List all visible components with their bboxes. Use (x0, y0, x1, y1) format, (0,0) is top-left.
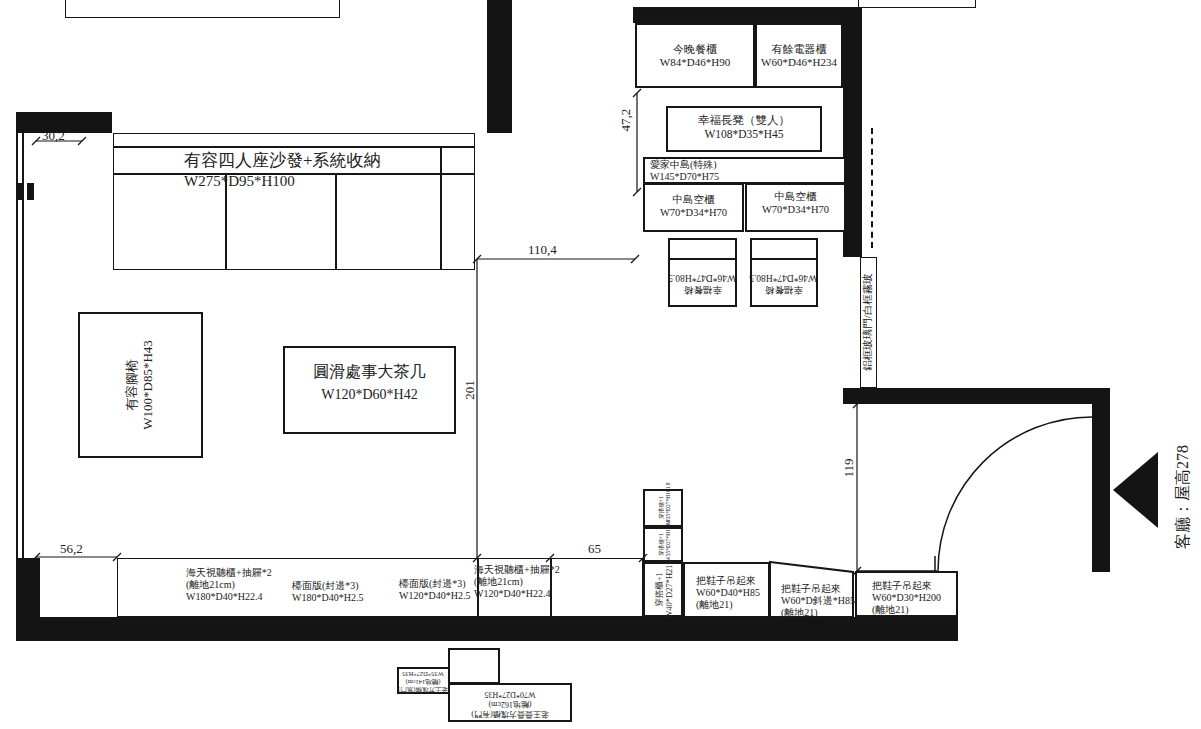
appliance-cabinet-name: 有餘電器櫃 (755, 43, 843, 56)
counter-180-label: 檯面版(封邊*3) W180*D40*H2.5 (292, 580, 363, 604)
cube-cabinet-small-label: 老王方塊櫃(無門) (離地141cm) W35*D27*H35 (393, 670, 453, 694)
island-cabinet-left-name: 中島空櫃 (643, 194, 744, 207)
window-hatch-2 (27, 183, 34, 200)
adjacent-room-top-right (858, 0, 976, 8)
shoe-cabinet-c-name: 把鞋子吊起來 (872, 580, 941, 592)
cube-cabinet-large-name: 老王疊疊方塊櫃(有門) (465, 709, 555, 719)
glass-door-label: 鋁框玻璃門/白框霧玻 (862, 262, 876, 382)
appliance-cabinet-dim: W60*D46*H234 (755, 56, 843, 69)
dim-119-label: 119 (841, 451, 855, 485)
room-title: 客廳：屋高278 (1173, 434, 1193, 560)
island-dim: W145*D70*H75 (650, 171, 719, 183)
wardrobe-tall-label: 穿搭櫃+1 W40*D27*H219 (654, 555, 675, 625)
shoe-cabinet-b-label: 把鞋子吊起來 W60*D斜邊*H85 (離地21) (781, 583, 855, 620)
coffee-table-name: 圓滑處事大茶几 (283, 362, 456, 382)
dim-201-label: 201 (462, 373, 476, 407)
av-cabinet-120-label: 海天視聽櫃+抽屜*2 (離地21cm) W120*D40*H22.4 (474, 564, 560, 601)
adjacent-room-top-left (65, 0, 340, 18)
footstool-label: 有容腳椅 W100*D85*H43 (124, 315, 158, 455)
appliance-cabinet-label: 有餘電器櫃 W60*D46*H234 (755, 43, 843, 70)
av-cabinet-180-note: (離地21cm) (186, 579, 272, 591)
island-cabinet-right-dim: W70*D34*H70 (745, 204, 846, 217)
footstool-name: 有容腳椅 (124, 315, 140, 455)
wall-top-center (487, 0, 512, 133)
bench-dim: W108*D35*H45 (666, 127, 822, 141)
shoe-cabinet-b-name: 把鞋子吊起來 (781, 583, 855, 595)
shoe-cabinet-a-note: (離地21) (696, 599, 760, 611)
cube-cabinet-small-note: (離地141cm) (393, 678, 453, 686)
counter-180-name: 檯面版(封邊*3) (292, 580, 363, 592)
wall-bottom (16, 617, 958, 641)
window-hatch-1 (17, 183, 24, 200)
dashed-boundary-line (871, 128, 873, 248)
footstool-dim: W100*D85*H43 (140, 315, 156, 455)
counter-120-dim: W120*D40*H2.5 (399, 590, 470, 602)
wall-right-lower (1092, 388, 1110, 572)
island-label: 愛家中島(特殊) W145*D70*H75 (650, 159, 719, 182)
door-swing-arc (938, 417, 1092, 571)
dining-cabinet-name: 今晚餐櫃 (635, 43, 755, 56)
cube-cabinet-large-note: (離地162cm) (465, 699, 555, 709)
section-marker-triangle (1113, 452, 1158, 528)
sofa-armrest-line (440, 146, 442, 270)
island-cabinet-left-label: 中島空櫃 W70*D34*H70 (643, 194, 744, 220)
av-cabinet-120-note: (離地21cm) (474, 576, 560, 588)
av-cabinet-180-label: 海天視聽櫃+抽屜*2 (離地21cm) W180*D40*H22.4 (186, 567, 272, 604)
wall-entry-horizontal (843, 388, 1110, 404)
dim-47-label: 47,2 (618, 101, 632, 139)
counter-120-name: 檯面版(封邊*3) (399, 578, 470, 590)
dim-56-label: 56,2 (60, 541, 83, 557)
cube-cabinet-small-name: 老王方塊櫃(無門) (393, 686, 453, 694)
dining-chair-right-dim: W46*D47*H80.5 (751, 272, 817, 284)
sofa-name: 有容四人座沙發+系統收納 (184, 151, 381, 172)
dining-chair-right-back-line (750, 258, 818, 260)
coffee-table-label: 圓滑處事大茶几 W120*D60*H42 (283, 362, 456, 403)
dining-chair-right-label: 幸福餐椅 W46*D47*H80.5 (751, 272, 817, 295)
shoe-cabinet-a-name: 把鞋子吊起來 (696, 575, 760, 587)
dim-65-label: 65 (588, 541, 601, 557)
dining-chair-left-name: 幸福餐椅 (670, 284, 736, 296)
sofa-back-line-1 (113, 146, 475, 148)
coffee-table-dim: W120*D60*H42 (283, 386, 456, 403)
cube-cabinet-large-dim: W70*D27*H35 (465, 689, 555, 699)
bench-label: 幸福長凳（雙人） W108*D35*H45 (666, 113, 822, 141)
cube-cabinet-small-dim: W35*D27*H35 (393, 670, 453, 678)
wardrobe-tall-dim: W40*D27*H219 (664, 555, 674, 625)
island-cabinet-right-label: 中島空櫃 W70*D34*H70 (745, 191, 846, 217)
dining-chair-left-back-line (668, 258, 737, 260)
wall-top-right-horizontal (633, 7, 862, 23)
av-cabinet-120-dim: W120*D40*H22.4 (474, 588, 560, 600)
dining-chair-right-name: 幸福餐椅 (751, 284, 817, 296)
dining-chair-left-label: 幸福餐椅 W46*D47*H80.5 (670, 272, 736, 295)
dim-110-label: 110,4 (528, 242, 557, 258)
floor-plan: 有容四人座沙發+系統收納 W275*D95*H100 有容腳椅 W100*D85… (0, 0, 1201, 729)
island-cabinet-left-dim: W70*D34*H70 (643, 207, 744, 220)
wardrobe-small-1-name: 穿搭櫃+1 (658, 491, 665, 525)
sofa-dim: W275*D95*H100 (184, 172, 381, 190)
cube-cabinet-empty-outline (448, 648, 500, 684)
av-cabinet-120-name: 海天視聽櫃+抽屜*2 (474, 564, 560, 576)
shoe-cabinet-c-note: (離地21) (872, 604, 941, 616)
cube-cabinet-large-label: 老王疊疊方塊櫃(有門) (離地162cm) W70*D27*H35 (465, 689, 555, 719)
shoe-cabinet-c-dim: W60*D30*H200 (872, 592, 941, 604)
island-cabinet-right-name: 中島空櫃 (745, 191, 846, 204)
counter-180-dim: W180*D40*H2.5 (292, 592, 363, 604)
island-name: 愛家中島(特殊) (650, 159, 719, 171)
shoe-cabinet-a-dim: W60*D40*H85 (696, 587, 760, 599)
av-cabinet-180-dim: W180*D40*H22.4 (186, 591, 272, 603)
wardrobe-tall-name: 穿搭櫃+1 (654, 555, 664, 625)
shoe-cabinet-b-dim: W60*D斜邊*H85 (781, 595, 855, 607)
shoe-cabinet-b-note: (離地21) (781, 607, 855, 619)
shoe-cabinet-a-label: 把鞋子吊起來 W60*D40*H85 (離地21) (696, 575, 760, 612)
shoe-cabinet-c-label: 把鞋子吊起來 W60*D30*H200 (離地21) (872, 580, 941, 617)
dining-cabinet-dim: W84*D46*H90 (635, 56, 755, 69)
dining-cabinet-label: 今晚餐櫃 W84*D46*H90 (635, 43, 755, 70)
dim-30-label: 30,2 (42, 128, 65, 144)
sofa-label: 有容四人座沙發+系統收納 W275*D95*H100 (184, 151, 381, 190)
counter-120-label: 檯面版(封邊*3) W120*D40*H2.5 (399, 578, 470, 602)
dining-chair-left-dim: W46*D47*H80.5 (670, 272, 736, 284)
av-cabinet-180-name: 海天視聽櫃+抽屜*2 (186, 567, 272, 579)
bench-name: 幸福長凳（雙人） (666, 113, 822, 127)
